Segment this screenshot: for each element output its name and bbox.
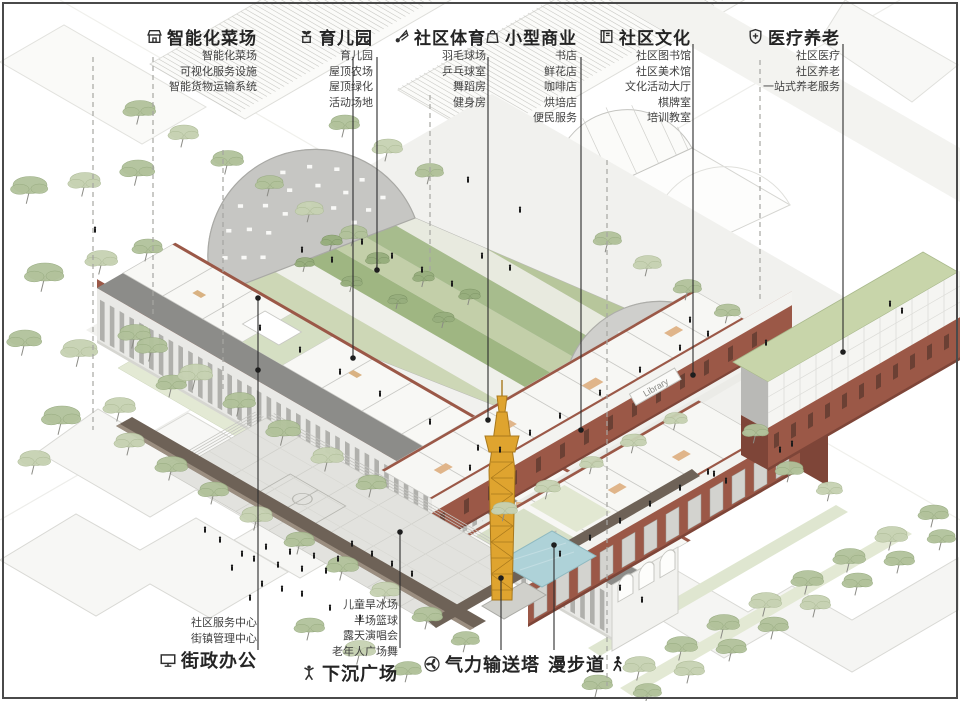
shuttlecock-icon [392, 28, 410, 46]
legend-item: 育儿园 [297, 49, 373, 65]
legend-title: 社区文化 [619, 24, 691, 49]
legend-sports: 社区体育 羽毛球场 乒乓球室 舞蹈房 健身房 [392, 24, 486, 111]
legend-title-row: 小型商业 [483, 24, 577, 49]
shield-cross-icon [746, 28, 764, 46]
legend-item: 烘培店 [483, 96, 577, 112]
legend-item: 社区服务中心 [159, 616, 257, 632]
legend-promenade: 漫步道 [548, 651, 627, 677]
legend-title-row: 育儿园 [297, 24, 373, 49]
legend-title: 街政办公 [181, 647, 257, 673]
legend-title-row: 下沉广场 [300, 660, 398, 686]
legend-item: 培训教室 [597, 111, 691, 127]
legend-item: 咖啡店 [483, 80, 577, 96]
legend-item: 舞蹈房 [392, 80, 486, 96]
legend-item: 社区图书馆 [597, 49, 691, 65]
legend-title-row: 漫步道 [548, 651, 627, 677]
legend-item: 社区美术馆 [597, 65, 691, 81]
legend-item: 露天演唱会 [300, 629, 398, 645]
legend-medical: 医疗养老 社区医疗 社区养老 一站式养老服务 [746, 24, 840, 96]
legend-title: 下沉广场 [322, 660, 398, 686]
legend-item: 文化活动大厅 [597, 80, 691, 96]
legend-title-row: 气力输送塔 [423, 651, 540, 677]
legend-title: 智能化菜场 [167, 24, 257, 49]
legend-item: 棋牌室 [597, 96, 691, 112]
legend-sunken-plaza: 儿童旱冰场 半场篮球 露天演唱会 老年人广场舞 下沉广场 [300, 598, 398, 686]
legend-item: 健身房 [392, 96, 486, 112]
legend-title: 育儿园 [319, 24, 373, 49]
legend-pneumatic-tower: 气力输送塔 [423, 651, 540, 677]
legend-title: 医疗养老 [768, 24, 840, 49]
legend-item: 便民服务 [483, 111, 577, 127]
legend-title-row: 社区体育 [392, 24, 486, 49]
legend-culture: 社区文化 社区图书馆 社区美术馆 文化活动大厅 棋牌室 培训教室 [597, 24, 691, 127]
legend-item: 社区养老 [746, 65, 840, 81]
legend-item: 可视化服务设施 [145, 65, 257, 81]
architecture-axonometric-page: Library [0, 0, 960, 701]
legend-item: 屋顶绿化 [297, 80, 373, 96]
legend-commerce: 小型商业 书店 鲜花店 咖啡店 烘培店 便民服务 [483, 24, 577, 127]
legend-item: 鲜花店 [483, 65, 577, 81]
legend-title-row: 社区文化 [597, 24, 691, 49]
legend-item: 书店 [483, 49, 577, 65]
legend-item: 智能化菜场 [145, 49, 257, 65]
walking-person-icon [609, 655, 627, 673]
legend-item: 老年人广场舞 [300, 645, 398, 661]
legend-item: 智能货物运输系统 [145, 80, 257, 96]
book-icon [597, 28, 615, 46]
legend-street-office: 社区服务中心 街镇管理中心 街政办公 [159, 616, 257, 673]
sprout-planter-icon [297, 28, 315, 46]
legend-smart-market: 智能化菜场 智能化菜场 可视化服务设施 智能货物运输系统 [145, 24, 257, 96]
legend-title-row: 智能化菜场 [145, 24, 257, 49]
legend-nursery: 育儿园 育儿园 屋顶农场 屋顶绿化 活动场地 [297, 24, 373, 111]
legend-item: 乒乓球室 [392, 65, 486, 81]
legend-item: 半场篮球 [300, 614, 398, 630]
legend-item: 一站式养老服务 [746, 80, 840, 96]
legend-title: 社区体育 [414, 24, 486, 49]
legend-title: 气力输送塔 [445, 651, 540, 677]
legend-title: 漫步道 [548, 651, 605, 677]
legend-title: 小型商业 [505, 24, 577, 49]
legend-item: 儿童旱冰场 [300, 598, 398, 614]
market-stall-icon [145, 28, 163, 46]
legend-item: 社区医疗 [746, 49, 840, 65]
legend-item: 街镇管理中心 [159, 632, 257, 648]
dancing-person-icon [300, 664, 318, 682]
legend-item: 活动场地 [297, 96, 373, 112]
legend-item: 屋顶农场 [297, 65, 373, 81]
shopping-bag-icon [483, 28, 501, 46]
legend-title-row: 医疗养老 [746, 24, 840, 49]
fan-icon [423, 655, 441, 673]
legend-title-row: 街政办公 [159, 647, 257, 673]
legend-item: 羽毛球场 [392, 49, 486, 65]
monitor-icon [159, 651, 177, 669]
